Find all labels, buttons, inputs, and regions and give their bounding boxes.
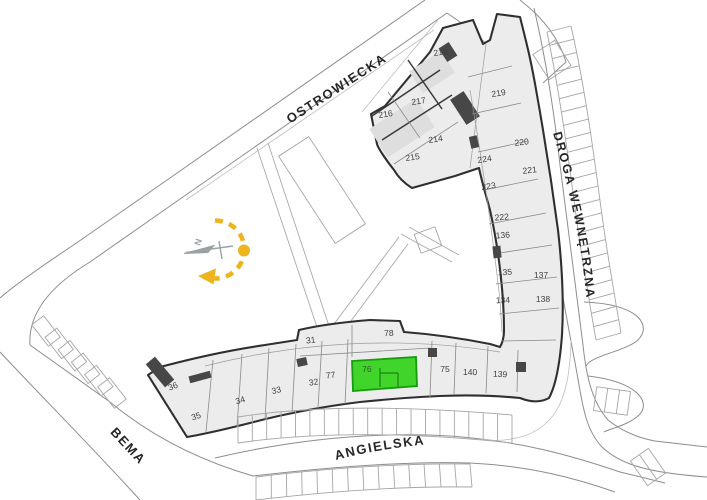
unit-label-222[interactable]: 222 bbox=[494, 211, 509, 222]
unit-label-32[interactable]: 32 bbox=[308, 376, 319, 387]
unit-label-135[interactable]: 135 bbox=[498, 267, 513, 278]
street-label-bema: BEMA bbox=[108, 424, 149, 467]
unit-label-139[interactable]: 139 bbox=[493, 369, 508, 380]
unit-label-31[interactable]: 31 bbox=[305, 335, 316, 346]
unit-label-137[interactable]: 137 bbox=[534, 270, 549, 280]
courtyard-path bbox=[257, 148, 319, 333]
unit-label-78[interactable]: 78 bbox=[384, 328, 394, 338]
site-plan-map: N OSTROWIECKA DROGA WEWNĘTRZNA ANGIELSKA… bbox=[0, 0, 707, 500]
road-edge-droga-right bbox=[534, 8, 707, 447]
courtyard-path bbox=[401, 234, 452, 262]
north-label: N bbox=[192, 237, 204, 246]
unit-label-134[interactable]: 134 bbox=[496, 295, 511, 306]
courtyard-path bbox=[334, 237, 399, 324]
road-edge-ostrowiecka-nw bbox=[0, 0, 425, 298]
unit-label-220[interactable]: 220 bbox=[514, 136, 530, 148]
courtyard-path bbox=[268, 143, 330, 329]
driveway-loop-2 bbox=[588, 376, 643, 432]
unit-label-138[interactable]: 138 bbox=[536, 294, 551, 304]
compass: N bbox=[184, 220, 250, 284]
unit-label-76[interactable]: 76 bbox=[362, 364, 372, 374]
courtyard-path bbox=[345, 244, 408, 329]
unit-label-221[interactable]: 221 bbox=[522, 164, 538, 176]
unit-label-215[interactable]: 215 bbox=[405, 151, 421, 163]
unit-label-140[interactable]: 140 bbox=[463, 367, 478, 377]
courtyard-plot bbox=[279, 137, 366, 244]
unit-label-75[interactable]: 75 bbox=[440, 364, 450, 374]
unit-label-218[interactable]: 218 bbox=[433, 46, 449, 58]
parking-angielska-lower bbox=[256, 464, 472, 500]
driveway-loop-1 bbox=[584, 302, 643, 366]
parking-group-east-2 bbox=[630, 448, 665, 485]
parking-bema bbox=[32, 316, 126, 409]
unit-label-136[interactable]: 136 bbox=[495, 230, 510, 241]
unit-label-223[interactable]: 223 bbox=[481, 180, 497, 192]
parking-group-east-1 bbox=[593, 387, 630, 415]
unit-label-77[interactable]: 77 bbox=[325, 369, 336, 380]
